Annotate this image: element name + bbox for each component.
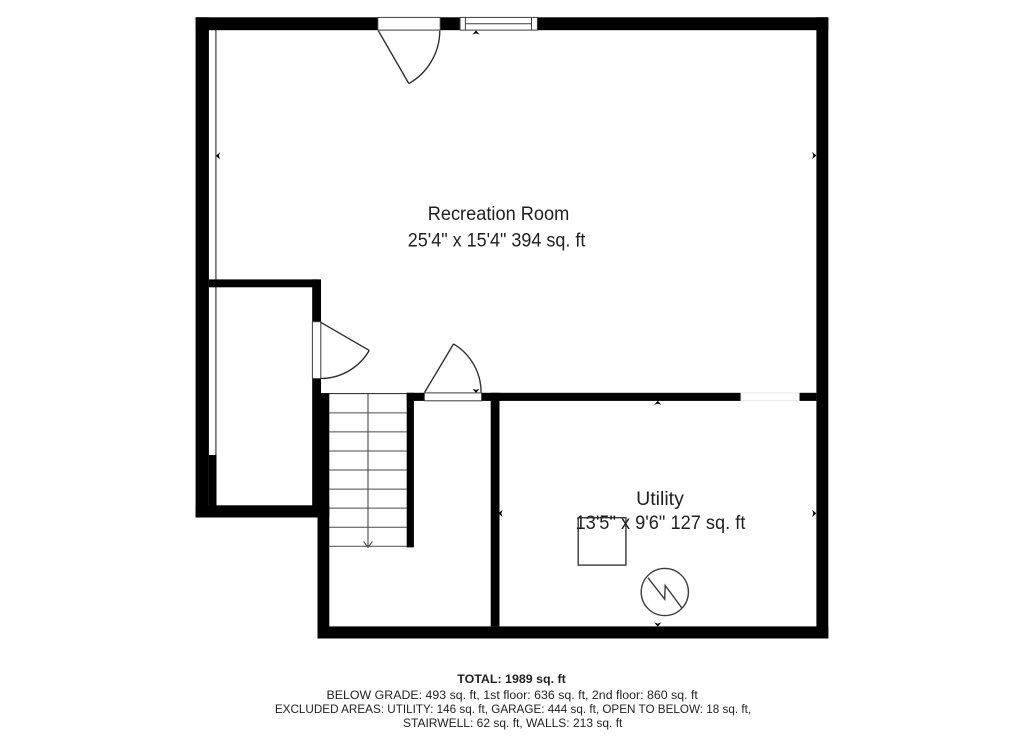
svg-text:STAIRWELL: 62 sq. ft, WALLS: 2: STAIRWELL: 62 sq. ft, WALLS: 213 sq. ft	[403, 716, 623, 730]
svg-text:TOTAL: 1989 sq. ft: TOTAL: 1989 sq. ft	[457, 672, 566, 686]
svg-text:EXCLUDED AREAS: UTILITY: 146 s: EXCLUDED AREAS: UTILITY: 146 sq. ft, GAR…	[275, 702, 751, 716]
svg-text:BELOW GRADE: 493 sq. ft, 1st f: BELOW GRADE: 493 sq. ft, 1st floor: 636 …	[327, 688, 699, 702]
svg-text:Recreation Room: Recreation Room	[428, 203, 570, 225]
svg-text:25'4" x 15'4" 394 sq. ft: 25'4" x 15'4" 394 sq. ft	[408, 229, 586, 251]
svg-text:Utility: Utility	[636, 488, 684, 510]
svg-text:13'5" x 9'6" 127 sq. ft: 13'5" x 9'6" 127 sq. ft	[576, 512, 746, 534]
